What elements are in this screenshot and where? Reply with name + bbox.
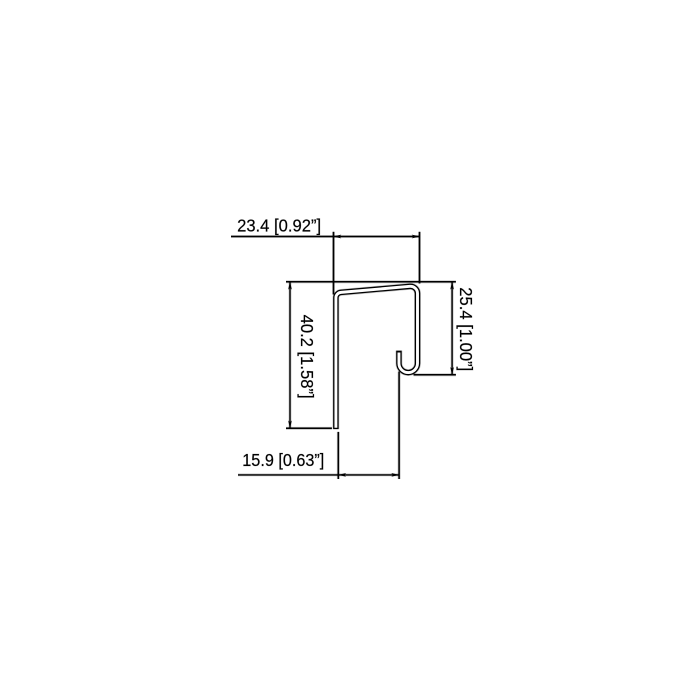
svg-text:25.4 [1.00”]: 25.4 [1.00”] [456,287,476,371]
svg-text:40.2 [1.58”]: 40.2 [1.58”] [297,315,317,399]
svg-text:23.4 [0.92”]: 23.4 [0.92”] [237,215,321,235]
svg-text:15.9 [0.63”]: 15.9 [0.63”] [242,450,324,470]
